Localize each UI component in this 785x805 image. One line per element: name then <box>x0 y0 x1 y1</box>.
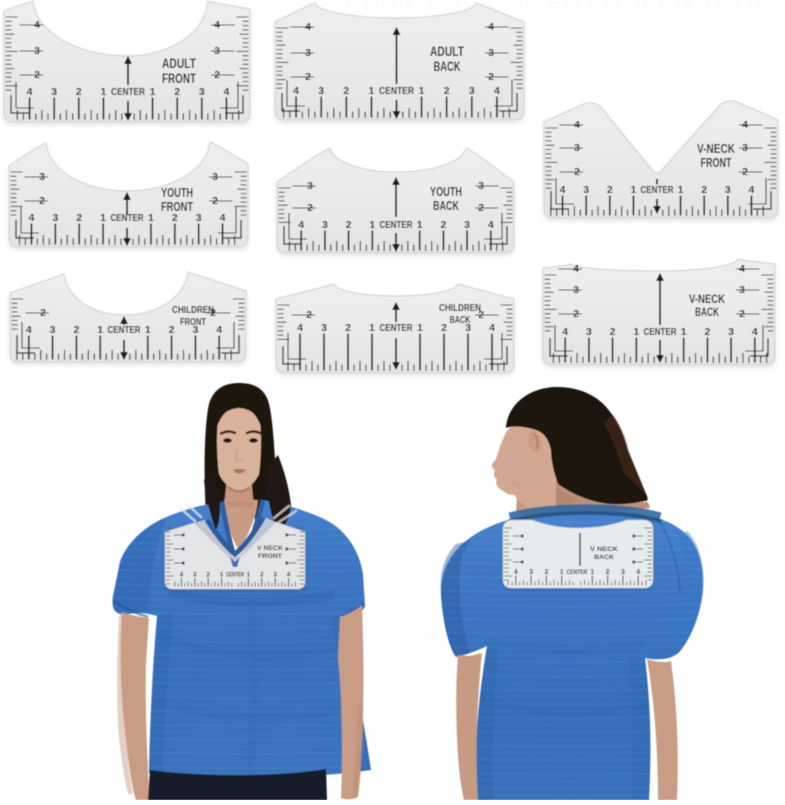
svg-text:V NECK: V NECK <box>257 545 284 552</box>
svg-text:3: 3 <box>321 322 327 334</box>
svg-text:1: 1 <box>417 219 423 231</box>
svg-text:FRONT: FRONT <box>258 553 282 560</box>
svg-text:4: 4 <box>298 219 304 231</box>
svg-text:2: 2 <box>444 85 450 97</box>
svg-text:4: 4 <box>748 184 754 196</box>
svg-text:3: 3 <box>583 184 589 196</box>
svg-text:4: 4 <box>28 212 34 224</box>
svg-text:CENTER: CENTER <box>567 569 588 576</box>
svg-text:4: 4 <box>220 212 226 224</box>
svg-text:4: 4 <box>752 326 758 338</box>
svg-text:2: 2 <box>345 322 351 334</box>
svg-text:3: 3 <box>469 85 475 97</box>
svg-text:2: 2 <box>73 324 79 336</box>
svg-text:1: 1 <box>368 85 374 97</box>
svg-text:BACK: BACK <box>695 305 719 319</box>
svg-text:1: 1 <box>97 324 103 336</box>
svg-text:1: 1 <box>681 326 687 338</box>
svg-text:4: 4 <box>636 569 640 576</box>
svg-text:1: 1 <box>145 324 151 336</box>
svg-text:FRONT: FRONT <box>161 199 193 214</box>
svg-text:3: 3 <box>318 85 324 97</box>
svg-text:1: 1 <box>100 212 106 224</box>
svg-text:1: 1 <box>369 322 375 334</box>
svg-text:CENTER: CENTER <box>226 573 244 579</box>
svg-text:2: 2 <box>610 326 616 338</box>
svg-text:T SHIRT ALIGNMENT RULER TOOL: T SHIRT ALIGNMENT RULER TOOL <box>340 0 770 13</box>
svg-text:2: 2 <box>174 86 180 98</box>
svg-text:4: 4 <box>562 326 568 338</box>
svg-text:1: 1 <box>369 219 375 231</box>
svg-text:4: 4 <box>287 572 291 579</box>
svg-text:BACK: BACK <box>434 59 461 74</box>
svg-text:2: 2 <box>76 86 82 98</box>
svg-text:1: 1 <box>630 184 636 196</box>
svg-text:1: 1 <box>678 184 684 196</box>
svg-text:FRONT: FRONT <box>162 71 197 86</box>
svg-text:2: 2 <box>169 324 175 336</box>
svg-text:2: 2 <box>701 184 707 196</box>
svg-text:3: 3 <box>322 219 328 231</box>
svg-text:1: 1 <box>419 85 425 97</box>
svg-text:CENTER: CENTER <box>108 324 141 336</box>
svg-text:2: 2 <box>206 572 210 579</box>
svg-text:V-NECK: V-NECK <box>689 292 725 306</box>
svg-text:3: 3 <box>621 569 625 576</box>
svg-text:CHILDREN: CHILDREN <box>172 304 214 316</box>
svg-text:1: 1 <box>417 322 423 334</box>
svg-text:2: 2 <box>441 322 447 334</box>
svg-text:BACK: BACK <box>594 554 614 561</box>
svg-text:CENTER: CENTER <box>380 219 413 231</box>
svg-text:4: 4 <box>223 86 229 98</box>
svg-text:3: 3 <box>273 572 277 579</box>
svg-text:4: 4 <box>488 219 494 231</box>
svg-text:3: 3 <box>728 326 734 338</box>
svg-text:CENTER: CENTER <box>644 326 677 338</box>
svg-text:2: 2 <box>544 569 548 576</box>
svg-text:V-NECK: V-NECK <box>697 142 735 156</box>
svg-text:4: 4 <box>494 85 500 97</box>
svg-text:1: 1 <box>148 212 154 224</box>
svg-text:2: 2 <box>607 184 613 196</box>
svg-text:3: 3 <box>725 184 731 196</box>
svg-text:3: 3 <box>52 212 58 224</box>
svg-text:FRONT: FRONT <box>180 316 206 328</box>
svg-text:FRONT: FRONT <box>701 156 732 170</box>
svg-text:1: 1 <box>590 569 594 576</box>
svg-text:1: 1 <box>247 572 251 579</box>
svg-text:CENTER: CENTER <box>380 322 413 334</box>
svg-text:1: 1 <box>220 572 224 579</box>
svg-text:3: 3 <box>586 326 592 338</box>
svg-text:2: 2 <box>76 212 82 224</box>
svg-text:4: 4 <box>489 322 495 334</box>
svg-text:1: 1 <box>150 86 156 98</box>
svg-text:4: 4 <box>180 572 184 579</box>
svg-text:2: 2 <box>343 85 349 97</box>
svg-text:3: 3 <box>193 572 197 579</box>
svg-text:2: 2 <box>440 219 446 231</box>
svg-text:2: 2 <box>704 326 710 338</box>
svg-text:CHILDREN: CHILDREN <box>439 302 481 314</box>
svg-text:2: 2 <box>606 569 610 576</box>
svg-text:3: 3 <box>529 569 533 576</box>
svg-text:ADULT: ADULT <box>162 56 197 71</box>
svg-text:1: 1 <box>100 86 106 98</box>
svg-text:4: 4 <box>216 324 222 336</box>
svg-text:3: 3 <box>51 86 57 98</box>
svg-text:3: 3 <box>464 219 470 231</box>
svg-text:BACK: BACK <box>433 198 459 213</box>
svg-text:4: 4 <box>26 324 32 336</box>
svg-text:CENTER: CENTER <box>641 184 674 196</box>
svg-text:V NECK: V NECK <box>590 546 618 553</box>
svg-text:3: 3 <box>196 212 202 224</box>
svg-text:CENTER: CENTER <box>111 86 145 98</box>
svg-text:3: 3 <box>50 324 56 336</box>
svg-text:1: 1 <box>560 569 564 576</box>
svg-text:YOUTH: YOUTH <box>161 185 193 200</box>
svg-text:4: 4 <box>27 86 33 98</box>
svg-text:BACK: BACK <box>450 314 471 326</box>
svg-text:YOUTH: YOUTH <box>430 184 462 199</box>
svg-text:2: 2 <box>260 572 264 579</box>
svg-text:4: 4 <box>514 569 518 576</box>
svg-text:4: 4 <box>297 322 303 334</box>
svg-text:1: 1 <box>633 326 639 338</box>
svg-text:4: 4 <box>560 184 566 196</box>
svg-text:2: 2 <box>346 219 352 231</box>
svg-text:CENTER: CENTER <box>379 85 414 97</box>
svg-text:4: 4 <box>293 85 299 97</box>
svg-text:ADULT: ADULT <box>430 44 465 59</box>
svg-text:3: 3 <box>199 86 205 98</box>
